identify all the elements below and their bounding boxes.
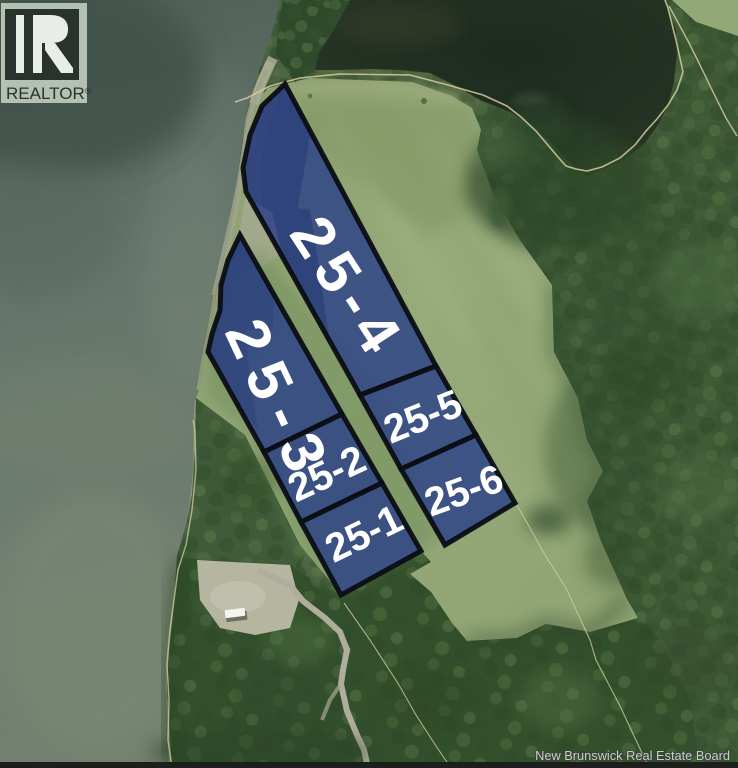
svg-text:New Brunswick Real Estate Boar: New Brunswick Real Estate Board — [535, 748, 730, 763]
